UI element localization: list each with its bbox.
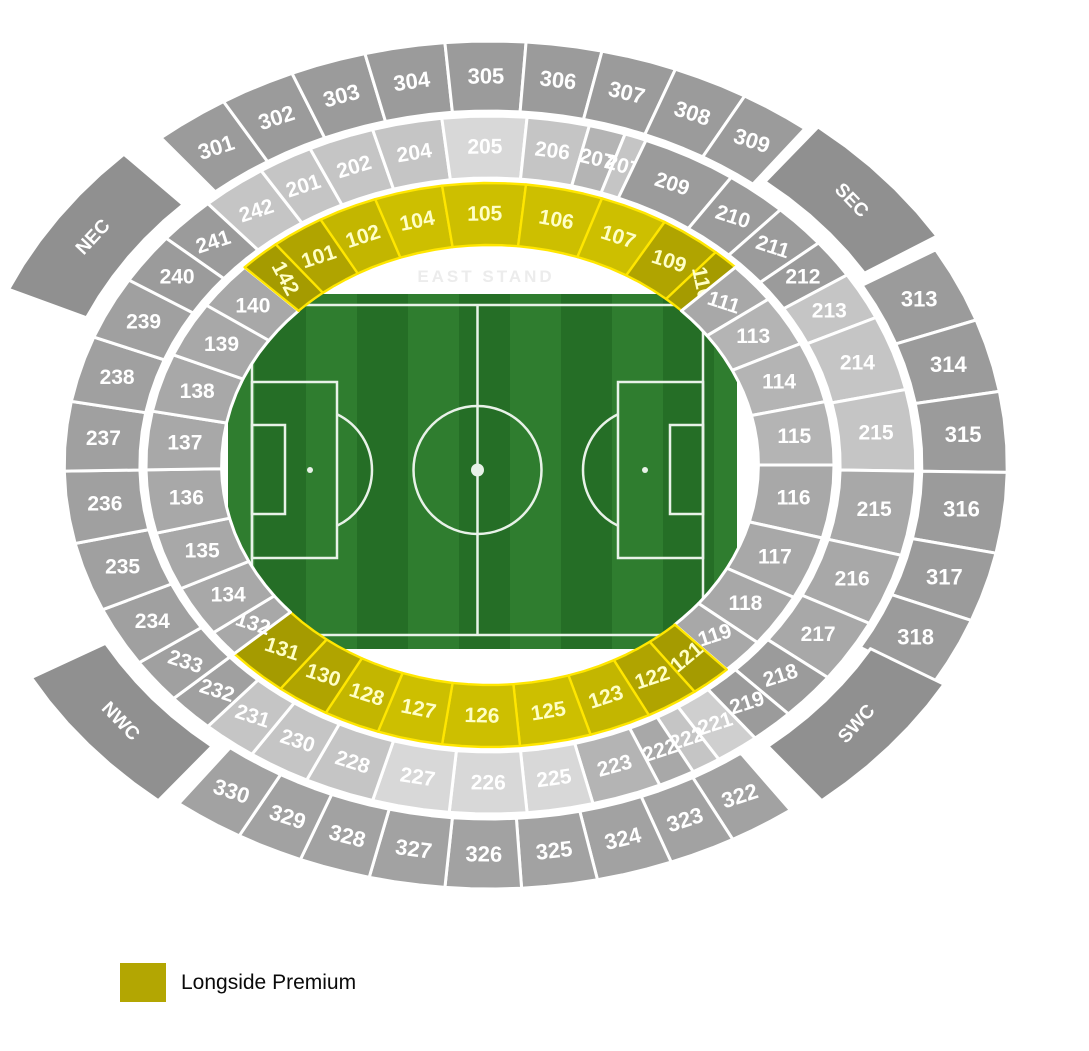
section-314-label: 314 [930,352,967,377]
section-315-label: 315 [945,422,982,447]
section-117-label: 117 [758,546,792,569]
section-118-label: 118 [728,592,762,615]
section-216-label: 216 [835,568,870,591]
section-140-label: 140 [235,295,270,318]
section-214-label: 214 [840,351,875,374]
section-217-label: 217 [801,623,836,646]
section-235-label: 235 [105,556,140,579]
section-105-label: 105 [467,202,503,226]
section-136-label: 136 [169,486,204,509]
stadium-seating-map: EAST STAND140142101102104105106107109110… [0,0,1089,1051]
east-stand-label: EAST STAND [417,267,554,286]
section-226-label: 226 [471,771,506,794]
section-137-label: 137 [167,432,202,455]
section-134-label: 134 [211,584,246,607]
seat-map-svg: EAST STAND140142101102104105106107109110… [0,0,1089,1051]
section-135-label: 135 [185,539,220,562]
section-240-label: 240 [160,266,195,289]
section-327-label: 327 [394,834,434,864]
section-317-label: 317 [926,565,963,590]
section-304-label: 304 [392,66,433,96]
section-236-label: 236 [87,492,122,515]
section-139-label: 139 [204,333,239,356]
legend-label: Longside Premium [181,971,356,995]
section-138-label: 138 [180,380,215,403]
section-212-label: 212 [785,266,820,289]
section-305-label: 305 [467,63,504,88]
section-318-label: 318 [897,625,934,650]
section-205-label: 205 [467,135,503,158]
section-215-label: 215 [858,422,893,445]
section-326-label: 326 [465,841,502,866]
section-115-label: 115 [777,425,811,448]
section-313-label: 313 [901,287,938,312]
section-225-label: 225 [535,765,573,793]
legend-swatch-longside-premium [120,963,166,1002]
section-238-label: 238 [100,366,135,389]
section-215-2-label: 215 [857,498,892,521]
section-126-label: 126 [464,704,500,728]
pitch [228,294,737,649]
section-239-label: 239 [126,310,161,333]
section-316-label: 316 [943,497,980,522]
section-206-label: 206 [534,137,572,164]
section-325-label: 325 [534,836,573,865]
section-116-label: 116 [777,486,811,509]
section-114-label: 114 [762,371,796,394]
section-113-label: 113 [736,325,770,348]
legend: Longside Premium [120,963,356,1002]
section-213-label: 213 [812,299,847,322]
section-306-label: 306 [538,65,577,94]
section-237-label: 237 [86,427,121,450]
section-234-label: 234 [135,610,170,633]
